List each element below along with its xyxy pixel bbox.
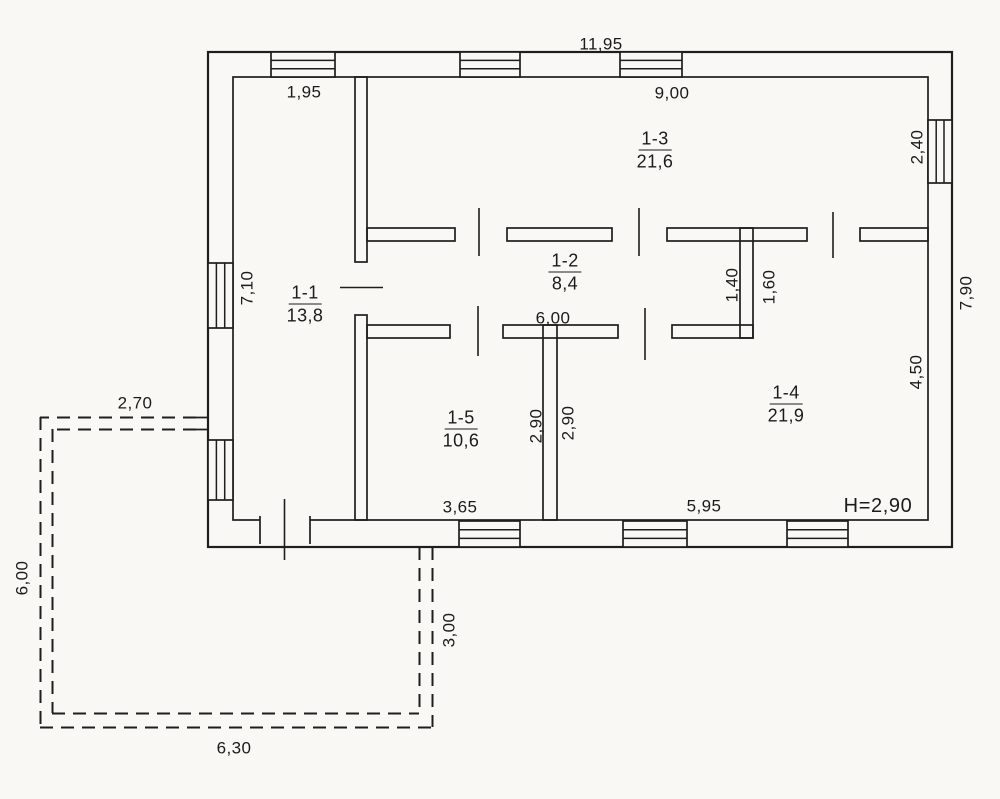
dim-room2-end-label: 1,40 xyxy=(724,268,741,303)
room-id: 1-5 xyxy=(444,409,477,430)
room-area: 8,4 xyxy=(552,273,578,293)
window xyxy=(620,52,682,77)
floor-plan-canvas: 11,95 1,95 9,00 2,40 7,90 7,10 1,40 1,60… xyxy=(0,0,1000,799)
dim-room4-right-label: 4,50 xyxy=(908,355,925,390)
wall-room1-right-lower xyxy=(355,315,367,520)
dim-room2-width-label: 6,00 xyxy=(536,310,571,327)
room-1-1-label: 1-1 13,8 xyxy=(287,284,324,325)
wall-room3-bottom-seg3 xyxy=(667,228,807,241)
dim-porch-left-label: 6,00 xyxy=(14,561,31,596)
window xyxy=(623,521,687,547)
window xyxy=(928,120,952,183)
room-area: 13,8 xyxy=(287,305,324,325)
dim-room3-width-label: 9,00 xyxy=(655,85,690,102)
dim-room4-left-label: 2,90 xyxy=(560,406,577,441)
window xyxy=(208,440,233,500)
dim-room1-height-label: 7,10 xyxy=(239,271,256,306)
room-1-4-label: 1-4 21,9 xyxy=(768,384,805,425)
room-area: 21,6 xyxy=(637,151,674,171)
room-1-2-label: 1-2 8,4 xyxy=(548,252,581,293)
ceiling-height-label: H=2,90 xyxy=(844,496,913,516)
room-id: 1-3 xyxy=(638,130,671,151)
room-area: 21,9 xyxy=(768,405,805,425)
dim-room5-width-label: 3,65 xyxy=(443,499,478,516)
wall-room2-right xyxy=(740,228,753,338)
wall-room3-bottom-seg2 xyxy=(507,228,612,241)
dim-room3-window-label: 2,40 xyxy=(909,130,926,165)
dim-room4-offset-label: 1,60 xyxy=(761,270,778,305)
dim-room5-height-label: 2,90 xyxy=(528,409,545,444)
wall-room1-right-upper xyxy=(355,77,367,262)
room-1-3-label: 1-3 21,6 xyxy=(637,130,674,171)
room-id: 1-1 xyxy=(288,284,321,305)
wall-room3-bottom-seg1 xyxy=(367,228,455,241)
dim-room1-width-label: 1,95 xyxy=(287,84,322,101)
dim-porch-bottom-label: 6,30 xyxy=(217,740,252,757)
room-area: 10,6 xyxy=(443,430,480,450)
room-id: 1-4 xyxy=(769,384,802,405)
wall-room3-bottom-seg4 xyxy=(860,228,928,241)
porch-dashed-outline xyxy=(40,417,433,728)
dim-total-width-label: 11,95 xyxy=(579,36,622,53)
window xyxy=(460,52,520,77)
window xyxy=(271,52,335,77)
window xyxy=(787,521,848,547)
wall-room2-bottom-seg1 xyxy=(367,325,450,338)
dim-porch-top-label: 2,70 xyxy=(118,395,153,412)
room-1-5-label: 1-5 10,6 xyxy=(443,409,480,450)
window xyxy=(459,521,520,547)
window xyxy=(208,263,233,328)
room-id: 1-2 xyxy=(548,252,581,273)
dim-total-height-label: 7,90 xyxy=(958,276,975,311)
dim-porch-right-label: 3,00 xyxy=(441,613,458,648)
dim-room4-width-label: 5,95 xyxy=(687,498,722,515)
